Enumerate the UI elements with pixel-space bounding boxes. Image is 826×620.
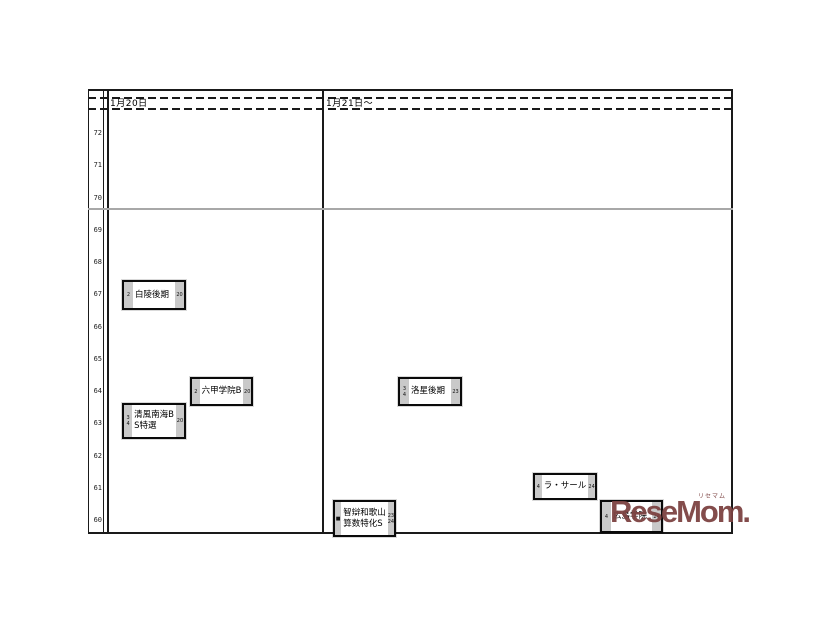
box-mark: 20 <box>244 389 250 395</box>
box-left-marks: 2 <box>192 379 200 404</box>
box-mark: 4 <box>126 421 129 427</box>
school-name: ラ・サール <box>542 475 589 498</box>
box-mark: 24 <box>588 484 594 490</box>
box-mark: 4 <box>403 392 406 398</box>
grid-line <box>103 89 104 534</box>
box-mark: 4 <box>605 514 608 520</box>
axis-tick-label: 65 <box>94 355 102 363</box>
resemom-logo: ReseMom. <box>610 494 749 530</box>
axis-tick-label: 70 <box>94 194 102 202</box>
box-mark: 23 <box>452 389 458 395</box>
box-mark: 2 <box>127 292 130 298</box>
axis-tick-label: 62 <box>94 452 102 460</box>
school-name-line: 六甲学院B <box>202 386 242 397</box>
box-right-marks: 20 <box>175 282 184 308</box>
box-mark: 4 <box>537 484 540 490</box>
school-name: 六甲学院B <box>200 379 244 404</box>
axis-tick-label: 72 <box>94 129 102 137</box>
grid-line <box>88 89 89 534</box>
school-box-seifu-nankai-b: 34清風南海BS特選20 <box>122 403 186 439</box>
axis-tick-label: 64 <box>94 387 102 395</box>
axis-tick-label: 60 <box>94 516 102 524</box>
box-mark: ■ <box>336 516 341 522</box>
school-box-rakusei-koki: 34洛星後期23 <box>398 377 462 406</box>
column-header-jan20: 1月20日 <box>110 96 148 109</box>
school-name-line: ラ・サール <box>544 481 587 492</box>
school-name: 智辯和歌山算数特化S <box>341 502 388 535</box>
school-name-line: 清風南海B <box>134 410 174 421</box>
box-mark: 2 <box>194 389 197 395</box>
axis-tick-label: 69 <box>94 226 102 234</box>
school-box-la-salle: 4ラ・サール24 <box>533 473 597 500</box>
axis-tick-label: 66 <box>94 323 102 331</box>
box-mark: 20 <box>176 292 182 298</box>
column-header-jan21: 1月21日～ <box>326 96 373 109</box>
school-name-line: 算数特化S <box>343 519 382 530</box>
box-mark: 20 <box>177 418 183 424</box>
box-right-marks: 23 <box>451 379 460 404</box>
axis-tick-label: 68 <box>94 258 102 266</box>
axis-tick-label: 63 <box>94 419 102 427</box>
box-left-marks: 34 <box>124 405 132 437</box>
grid-line <box>88 89 733 91</box>
box-right-marks: 20 <box>243 379 251 404</box>
box-mark: 24 <box>388 519 394 525</box>
school-name-line: 智辯和歌山 <box>343 508 386 519</box>
school-box-chiben-wakayama: ■智辯和歌山算数特化S2324 <box>333 500 396 537</box>
school-name: 洛星後期 <box>409 379 451 404</box>
box-right-marks: 2324 <box>388 502 394 535</box>
axis-tick-label: 67 <box>94 290 102 298</box>
grid-line <box>731 89 733 534</box>
school-name-line: 洛星後期 <box>411 386 445 397</box>
school-name: 清風南海BS特選 <box>132 405 176 437</box>
box-right-marks: 20 <box>176 405 184 437</box>
grid-line <box>88 208 733 210</box>
box-right-marks: 24 <box>588 475 595 498</box>
axis-tick-label: 71 <box>94 161 102 169</box>
exam-deviation-chart: 1月20日 1月21日～ 72717069686766656463626160 … <box>0 0 826 620</box>
box-left-marks: 4 <box>535 475 542 498</box>
grid-line <box>88 108 733 110</box>
school-name-line: 白陵後期 <box>135 290 169 301</box>
school-box-rokko-b: 2六甲学院B20 <box>190 377 253 406</box>
box-left-marks: 2 <box>124 282 133 308</box>
grid-line <box>107 89 109 534</box>
box-left-marks: 34 <box>400 379 409 404</box>
grid-line <box>88 97 733 99</box>
school-name: 白陵後期 <box>133 282 175 308</box>
school-box-hakuryo-koki: 2白陵後期20 <box>122 280 186 310</box>
grid-line <box>322 89 324 534</box>
axis-tick-label: 61 <box>94 484 102 492</box>
school-name-line: S特選 <box>134 421 156 432</box>
